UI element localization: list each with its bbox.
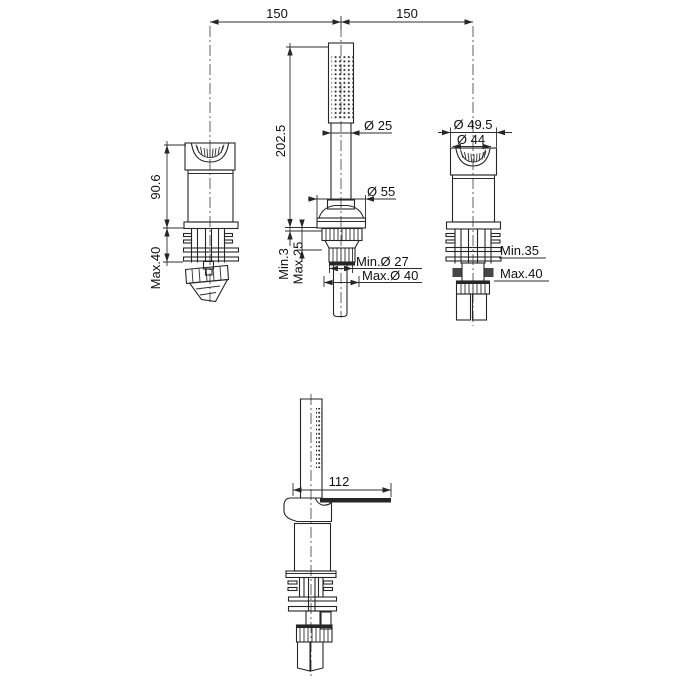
dim-hole-min-label: Min.Ø 27 xyxy=(356,254,409,269)
diverter-knurl xyxy=(461,151,486,162)
side-view: 112 xyxy=(284,394,391,676)
dim-diverter-outer-label: Ø 49.5 xyxy=(453,117,492,132)
dim-spout-reach-label: 112 xyxy=(329,474,350,489)
dim-wand-dia: Ø 25 xyxy=(323,118,393,136)
dim-diverter-max-label: Max.40 xyxy=(500,266,543,281)
dim-diverter-dia: Ø 49.5 Ø 44 xyxy=(438,117,512,149)
handle-body xyxy=(188,170,233,222)
side-center-block xyxy=(306,611,320,625)
handle-flange xyxy=(184,222,238,229)
front-view: 150 150 xyxy=(148,6,549,326)
dim-handshower-height-label: 202.5 xyxy=(273,125,288,158)
dim-diverter-min-label: Min.35 xyxy=(500,243,539,258)
shank-taper xyxy=(325,241,359,249)
technical-drawing-page: 150 150 xyxy=(0,0,700,700)
dim-handle-below-max-label: Max.40 xyxy=(148,247,163,290)
dim-span: 150 150 xyxy=(210,6,473,29)
side-hose-1 xyxy=(298,642,311,671)
diverter-hose-1 xyxy=(457,294,471,320)
diverter-hose-2 xyxy=(473,294,487,320)
faucet-dimension-drawing: 150 150 xyxy=(0,0,700,700)
side-clamp-plate-2 xyxy=(289,607,337,612)
spout xyxy=(320,498,391,503)
dim-handshower-height: 202.5 Min.3 Max.25 xyxy=(273,43,329,284)
side-body xyxy=(295,524,331,572)
diverter-body xyxy=(453,175,495,222)
handle-hose xyxy=(186,266,229,302)
supply-pipe xyxy=(334,266,348,317)
diverter-flange xyxy=(447,222,501,229)
dim-diverter-below: Min.35 Max.40 xyxy=(494,243,549,281)
hand-shower-front: 202.5 Min.3 Max.25 Ø 25 Ø 55 xyxy=(273,43,422,317)
side-hose-2 xyxy=(311,642,324,671)
dim-hole-max-label: Max.Ø 40 xyxy=(362,268,418,283)
dim-spout-reach: 112 xyxy=(293,474,391,497)
handle-valve-front: 90.6 Max.40 xyxy=(148,141,239,302)
spray-face-side-dots xyxy=(316,408,322,468)
dim-deck-max-label: Max.25 xyxy=(291,242,306,285)
spray-face-dots xyxy=(332,54,354,120)
dim-diverter-inner-label: Ø 44 xyxy=(457,132,485,147)
diverter-clamp-plate-2 xyxy=(446,257,501,261)
dim-span-right-label: 150 xyxy=(396,6,418,21)
dim-hole-dia: Min.Ø 27 Max.Ø 40 xyxy=(324,254,422,287)
diverter-clamp-plate-1 xyxy=(446,248,501,252)
dim-span-left-label: 150 xyxy=(266,6,288,21)
diverter-front: Ø 49.5 Ø 44 Min.35 Max.40 xyxy=(438,117,549,320)
dim-handle-height: 90.6 Max.40 xyxy=(148,141,186,289)
dim-deck-min-label: Min.3 xyxy=(276,248,291,280)
dim-base-dia-label: Ø 55 xyxy=(367,184,395,199)
dim-handle-height-label: 90.6 xyxy=(148,174,163,199)
dim-wand-dia-label: Ø 25 xyxy=(364,118,392,133)
side-clamp-plate-1 xyxy=(289,597,337,601)
